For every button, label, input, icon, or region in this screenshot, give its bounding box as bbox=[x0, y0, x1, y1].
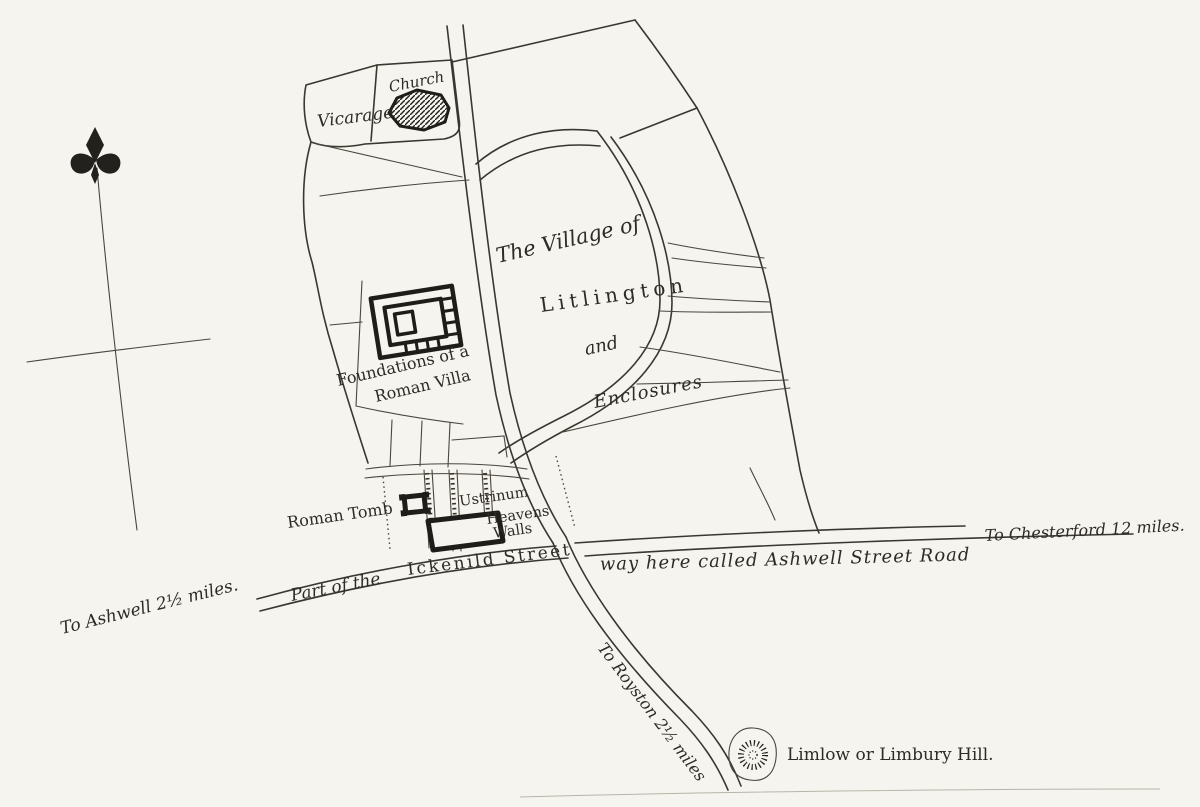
strip-line-5 bbox=[640, 347, 780, 372]
label-ustrinum: Ustrinum bbox=[458, 484, 529, 510]
parcel-dividers bbox=[390, 420, 450, 467]
road-to-royston bbox=[553, 537, 741, 790]
tomb-corner-se bbox=[424, 507, 431, 514]
strip-line-4 bbox=[660, 311, 772, 312]
label-village-enclosures: Enclosures bbox=[591, 371, 705, 413]
villa-room bbox=[395, 311, 416, 335]
strip-line-1 bbox=[668, 243, 764, 258]
tomb-corner-sw bbox=[401, 510, 408, 517]
limlow-tumulus-center bbox=[749, 751, 757, 759]
field-boundaries-west bbox=[304, 142, 469, 463]
map-canvas: Vicarage Church The Village of Litlingto… bbox=[0, 0, 1200, 807]
villa-parcel-bottom bbox=[356, 406, 463, 424]
tomb-corner-nw bbox=[399, 494, 406, 501]
field-line-under-church bbox=[313, 143, 462, 177]
label-vicarage: Vicarage bbox=[316, 103, 394, 132]
label-to-ashwell: To Ashwell 2½ miles. bbox=[58, 575, 240, 639]
field-division-upper bbox=[320, 180, 469, 196]
strip-line-8 bbox=[750, 468, 775, 520]
label-ashwell-way: way here called Ashwell Street Road bbox=[600, 544, 971, 575]
royston-road-east-line bbox=[566, 537, 741, 786]
label-roman-tomb: Roman Tomb bbox=[286, 498, 394, 532]
compass-north-icon bbox=[27, 127, 210, 530]
compass-needle-line bbox=[97, 168, 137, 530]
top-field-division bbox=[620, 108, 697, 138]
east-outer-boundary bbox=[697, 108, 819, 533]
church-building-icon bbox=[389, 90, 449, 130]
limlow-tumulus-ring bbox=[741, 743, 765, 767]
tomb-corner-ne bbox=[423, 491, 430, 498]
label-limlow: Limlow or Limbury Hill. bbox=[787, 745, 994, 765]
royston-road-west-line bbox=[553, 543, 728, 790]
compass-curl-left bbox=[71, 153, 95, 173]
label-village-of: The Village of bbox=[494, 211, 646, 268]
label-to-chesterford: To Chesterford 12 miles. bbox=[984, 516, 1185, 545]
compass-curl-right bbox=[96, 153, 120, 173]
lane-bottom-line bbox=[365, 474, 529, 479]
vicarage-church-divider bbox=[371, 65, 377, 141]
plate-edge-line bbox=[520, 789, 1160, 797]
loop-connector-top bbox=[476, 130, 597, 164]
compass-cross-line bbox=[27, 339, 210, 362]
roman-tomb-icon bbox=[399, 491, 431, 516]
label-village-and: and bbox=[583, 332, 620, 360]
road-village-street bbox=[447, 25, 566, 543]
loop-connector-bottom bbox=[480, 145, 600, 180]
label-ickenild-part1: Part of the bbox=[288, 569, 382, 606]
top-field-east-edge bbox=[635, 20, 697, 108]
antique-map-litlington: Vicarage Church The Village of Litlingto… bbox=[0, 0, 1200, 807]
parcel-step bbox=[452, 436, 507, 457]
villa-parcel-vertical bbox=[356, 281, 362, 406]
label-village-name: Litlington bbox=[538, 272, 689, 317]
top-field-north-edge bbox=[452, 20, 635, 62]
west-outer-boundary bbox=[304, 142, 368, 463]
dotted-boundary-east bbox=[556, 456, 575, 528]
villa-parcel-west-line bbox=[330, 322, 362, 325]
strip-line-2 bbox=[672, 258, 766, 268]
tomb-body bbox=[404, 495, 426, 513]
